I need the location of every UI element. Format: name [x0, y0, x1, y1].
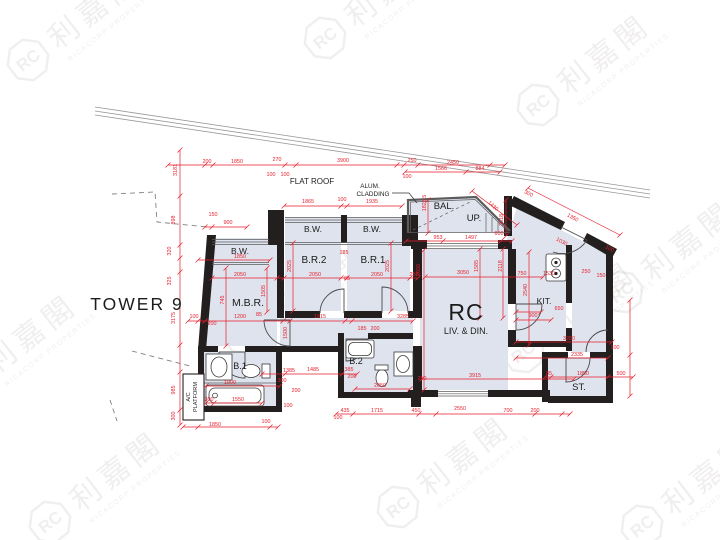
room-label-b2: B.2: [349, 356, 363, 366]
room-label-bw1: B.W.: [231, 246, 249, 256]
dimension-label: 2540: [523, 284, 529, 296]
room-label-up: UP.: [467, 213, 482, 224]
dimension-label: 2050: [309, 272, 321, 278]
dimension-label: 300: [205, 397, 214, 403]
dimension-label: 1915: [314, 314, 326, 320]
room-label-bal: BAL.: [434, 201, 455, 212]
dimension-label: 85: [546, 371, 552, 377]
dimension-label: 450: [412, 408, 421, 414]
dimension-label: 985: [171, 386, 177, 395]
tower-label: TOWER 9: [90, 294, 183, 314]
alum-cladding-label-1: ALUM.: [360, 183, 380, 190]
dimension-label: 2335: [571, 352, 583, 358]
dimension-label: 900: [224, 220, 233, 226]
ricacorp-watermark: RC利嘉閣RICACORP PROPERTIES: [511, 0, 671, 140]
dimension-label: 1865: [302, 199, 314, 205]
dimension-label: 2550: [454, 406, 466, 412]
dimension-label: 2025: [287, 260, 293, 272]
ricacorp-watermark: RC利嘉閣RICACORP PROPERTIES: [371, 402, 531, 540]
dimension-label: 2118: [498, 260, 504, 272]
dimension-label: 3618: [499, 214, 505, 226]
dimension-label: 2450: [447, 160, 459, 166]
dimension-label: 1715: [371, 408, 383, 414]
dimension-label: 100: [334, 415, 343, 421]
dimension-label: 2025: [385, 260, 391, 272]
dimension-label: 1530: [543, 271, 555, 277]
alum-cladding-label-2: CLADDING: [356, 191, 389, 198]
room-label-livdin: LIV. & DIN.: [444, 326, 488, 336]
dimension-label: 200: [348, 374, 357, 380]
rc-logo-text: RC: [13, 45, 44, 75]
dimension-label: 3900: [337, 158, 349, 164]
dimension-label: 100: [338, 197, 347, 203]
dimension-label: 85: [256, 312, 262, 318]
ac-platform-label-2: PLATFORM: [193, 382, 199, 412]
dimension-label: 300: [171, 412, 177, 421]
dimension-label: 500: [617, 371, 626, 377]
dimension-label: 100: [190, 314, 199, 320]
dimension-label: 700: [504, 408, 513, 414]
ricacorp-watermark: RC利嘉閣RICACORP PROPERTIES: [298, 0, 458, 73]
ricacorp-watermark: RC利嘉閣RICACORP PROPERTIES: [23, 417, 183, 540]
dimension-label: 1800: [224, 380, 236, 386]
dimension-label: 270: [273, 157, 282, 163]
dimension-label: 898: [171, 216, 177, 225]
dimension-label: 200: [531, 408, 540, 414]
dimension-label: 2050: [371, 272, 383, 278]
dimension-label: 2650: [416, 264, 422, 276]
dimension-label: 1200: [234, 314, 246, 320]
dimension-label: 1550: [232, 397, 244, 403]
dimension-label: 1823.5: [422, 195, 428, 212]
dimension-label: 650: [555, 306, 564, 312]
rc-logo-text: RC: [35, 507, 66, 537]
dimension-label: 1850: [209, 422, 221, 428]
dimension-label: 250: [582, 269, 591, 275]
dimension-label: 953: [434, 235, 443, 241]
dimension-label: 100: [262, 419, 271, 425]
dimension-label: 750: [518, 271, 527, 277]
dimension-label: 2050: [374, 383, 386, 389]
dimension-label: 100: [281, 172, 290, 178]
dimension-label: 1935: [366, 199, 378, 205]
room-label-kit: KIT.: [537, 296, 552, 306]
room-label-bw3: B.W.: [363, 224, 381, 234]
flat-roof-label: FLAT ROOF: [290, 177, 334, 186]
dimension-label: 100: [611, 345, 620, 351]
rc-logo-text: RC: [627, 511, 658, 540]
dimension-label: 300: [523, 189, 534, 199]
rc-logo-text: RC: [310, 23, 341, 53]
dimension-label: 200: [292, 388, 301, 394]
dimension-label: 85: [344, 276, 350, 282]
dimension-label: 1850: [231, 159, 243, 165]
dimension-label: 1505: [261, 285, 267, 297]
dimension-label: 150: [597, 273, 606, 279]
dimension-label: 3915: [469, 373, 481, 379]
dimension-label: 3050: [457, 270, 469, 276]
rc-logo-text: RC: [383, 492, 414, 522]
ac-platform: A/C PLATFORM: [183, 374, 204, 420]
dimension-label: 1497: [465, 235, 477, 241]
dimension-label: 900: [529, 313, 538, 319]
dimension-label: 1585: [474, 260, 480, 272]
room-label-b1: B.1: [233, 361, 247, 371]
dimension-label: 100: [403, 174, 412, 180]
ricacorp-watermark: RC利嘉閣RICACORP PROPERTIES: [615, 421, 720, 540]
dimension-label: 1500: [283, 327, 289, 339]
dimension-label: 185: [358, 326, 367, 332]
room-label-rc: RC: [448, 299, 483, 325]
dimension-label: 150: [209, 212, 218, 218]
dimension-label: 1485: [307, 367, 319, 373]
dimension-label: 385: [345, 367, 354, 373]
floor-plan-drawing: RC利嘉閣RICACORP PROPERTIESRC利嘉閣RICACORP PR…: [0, 0, 720, 540]
dimension-label: 185: [340, 250, 349, 256]
dimension-label: 1850: [577, 371, 589, 377]
room-label-mbr: M.B.R.: [232, 297, 264, 309]
dimension-label: 100: [284, 403, 293, 409]
room-label-bw2: B.W.: [304, 224, 322, 234]
floor-plan-page: RC利嘉閣RICACORP PROPERTIESRC利嘉閣RICACORP PR…: [0, 0, 720, 540]
room-label-st: ST.: [572, 382, 586, 393]
dimension-label: 3285: [397, 314, 409, 320]
dimension-label: 325: [167, 277, 173, 286]
dimension-label: 1385: [283, 368, 295, 374]
room-label-br1: B.R.1: [360, 255, 385, 266]
dimension-label: 100: [267, 172, 276, 178]
rc-logo-text: RC: [523, 90, 554, 120]
dimension-label: 250: [418, 376, 427, 382]
dimension-label: 200: [371, 326, 380, 332]
dimension-label: 300: [278, 378, 287, 384]
dimension-label: 2050: [234, 272, 246, 278]
dimension-label: 320: [167, 247, 173, 256]
dimension-label: 884: [476, 166, 485, 172]
ricacorp-watermark: RC利嘉閣RICACORP PROPERTIES: [595, 187, 720, 327]
ricacorp-watermark: RC利嘉閣RICACORP PROPERTIES: [1, 0, 161, 95]
dimension-label: 3280: [563, 336, 575, 342]
dimension-label: 250: [408, 158, 417, 164]
room-label-br2: B.R.2: [301, 255, 326, 266]
dimension-label: 200: [203, 159, 212, 165]
dimension-label: 745: [220, 296, 226, 305]
dimension-label: 200: [208, 321, 217, 327]
watermark-chinese-text: 利嘉閣: [636, 195, 720, 287]
dimension-label: 600: [495, 231, 504, 237]
dimension-label: 1566: [435, 166, 447, 172]
dimension-label: 3181: [173, 164, 179, 176]
ricacorp-watermark: RC利嘉閣RICACORP PROPERTIES: [0, 280, 98, 420]
ac-platform-label-1: A/C: [186, 392, 192, 401]
dimension-label: 435: [341, 408, 350, 414]
dimension-label: 1350: [566, 213, 579, 224]
